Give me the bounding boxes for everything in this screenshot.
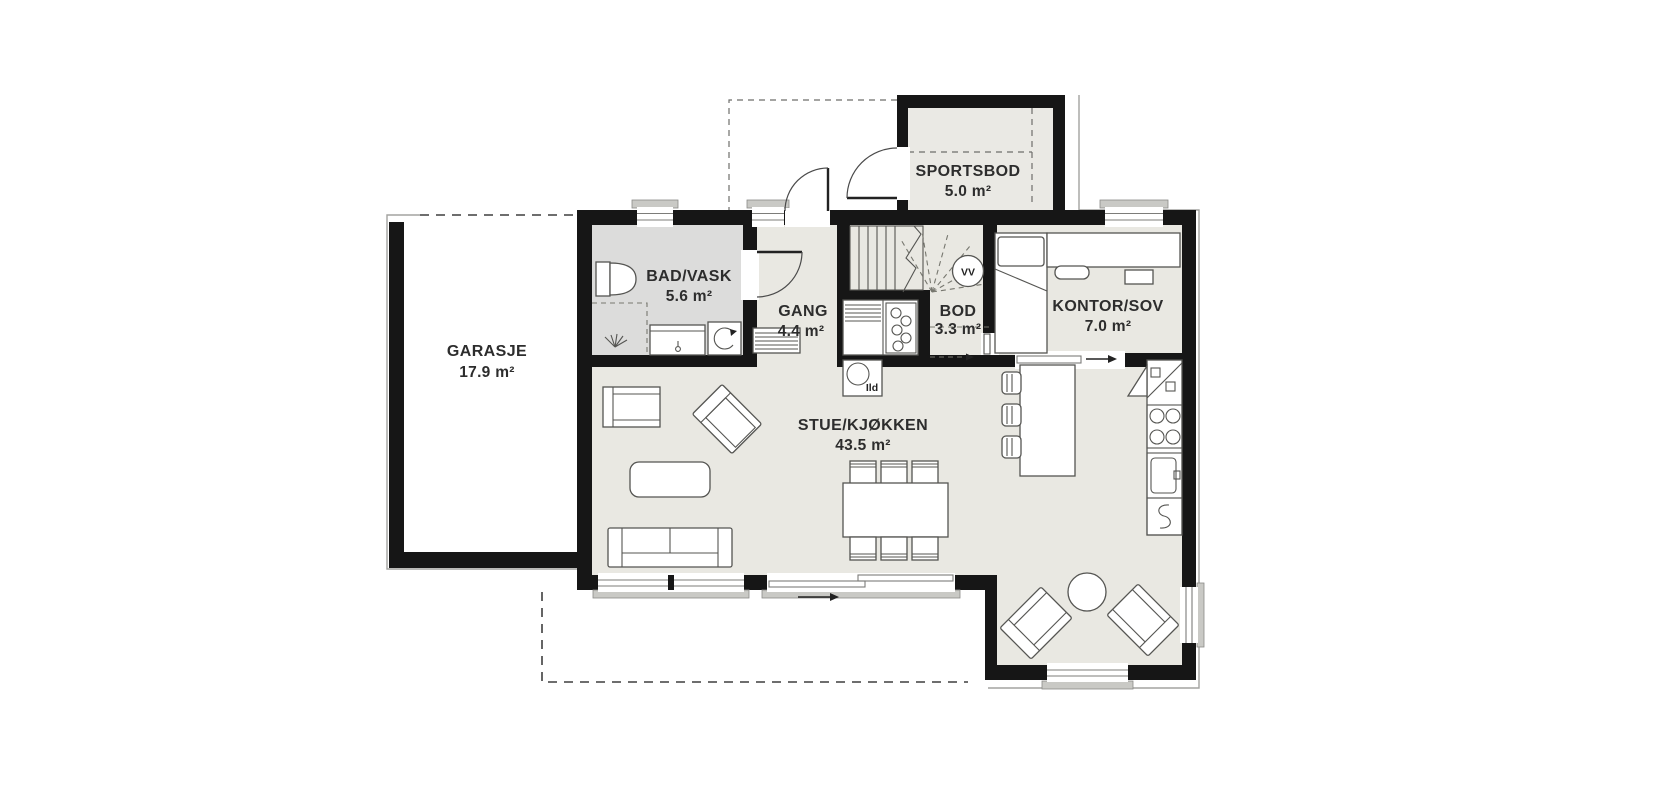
desk-shelf xyxy=(1125,270,1153,284)
window-office xyxy=(1100,200,1168,227)
room-area-bad-vask: 5.6 m² xyxy=(666,288,713,305)
window-hall xyxy=(747,200,789,227)
water-heater-icon: VV xyxy=(953,256,984,287)
room-area-garasje: 17.9 m² xyxy=(459,364,515,381)
room-area-gang: 4.4 m² xyxy=(778,323,825,340)
sofa xyxy=(608,528,732,567)
window-bathroom xyxy=(632,200,678,227)
floor-plan-page: VV xyxy=(0,0,1670,800)
window-living-1 xyxy=(593,573,749,598)
coffee-table xyxy=(630,462,710,497)
dining-set xyxy=(843,461,948,560)
room-label-gang: GANG xyxy=(778,303,828,320)
dining-chair xyxy=(912,461,938,484)
washing-machine-icon xyxy=(708,322,741,355)
room-label-garasje: GARASJE xyxy=(447,343,527,360)
window-lounge-right xyxy=(1180,583,1204,647)
floor-plan-canvas: VV xyxy=(0,0,1670,800)
fireplace-label: Ild xyxy=(866,382,878,394)
sportsbod-door xyxy=(847,147,910,200)
dining-chair xyxy=(881,537,907,560)
room-area-sportsbod: 5.0 m² xyxy=(945,183,992,200)
entrance-door xyxy=(785,168,830,227)
room-label-bod: BOD xyxy=(940,303,977,320)
dining-chair xyxy=(850,537,876,560)
bar-stool xyxy=(1002,372,1021,394)
round-table xyxy=(1068,573,1106,611)
room-area-stue-kjokken: 43.5 m² xyxy=(835,437,891,454)
garage-outline xyxy=(387,215,577,569)
room-area-bod: 3.3 m² xyxy=(935,321,982,338)
bar-stool xyxy=(1002,436,1021,458)
dining-chair xyxy=(881,461,907,484)
room-label-kontor-sov: KONTOR/SOV xyxy=(1052,298,1163,315)
fireplace-icon: Ild xyxy=(843,360,882,396)
dining-chair xyxy=(850,461,876,484)
room-label-stue-kjokken: STUE/KJØKKEN xyxy=(798,417,928,434)
bar-stool xyxy=(1002,404,1021,426)
room-label-bad-vask: BAD/VASK xyxy=(646,268,732,285)
dining-table xyxy=(843,483,948,537)
room-label-sportsbod: SPORTSBOD xyxy=(916,163,1021,180)
wardrobe xyxy=(843,300,918,355)
room-area-kontor-sov: 7.0 m² xyxy=(1085,318,1132,335)
vanity-sink xyxy=(650,325,705,355)
desk-chair xyxy=(1055,266,1089,279)
toilet-icon xyxy=(596,262,636,296)
dining-chair xyxy=(912,537,938,560)
room-bod: BOD 3.3 m² xyxy=(935,303,982,338)
terrace-outline xyxy=(542,592,968,682)
water-heater-label: VV xyxy=(961,267,975,279)
sliding-door-living xyxy=(762,573,960,601)
bed xyxy=(995,233,1047,353)
window-lounge-bottom xyxy=(1042,663,1133,689)
armchair xyxy=(603,387,660,427)
room-garasje: GARASJE 17.9 m² xyxy=(447,343,527,381)
